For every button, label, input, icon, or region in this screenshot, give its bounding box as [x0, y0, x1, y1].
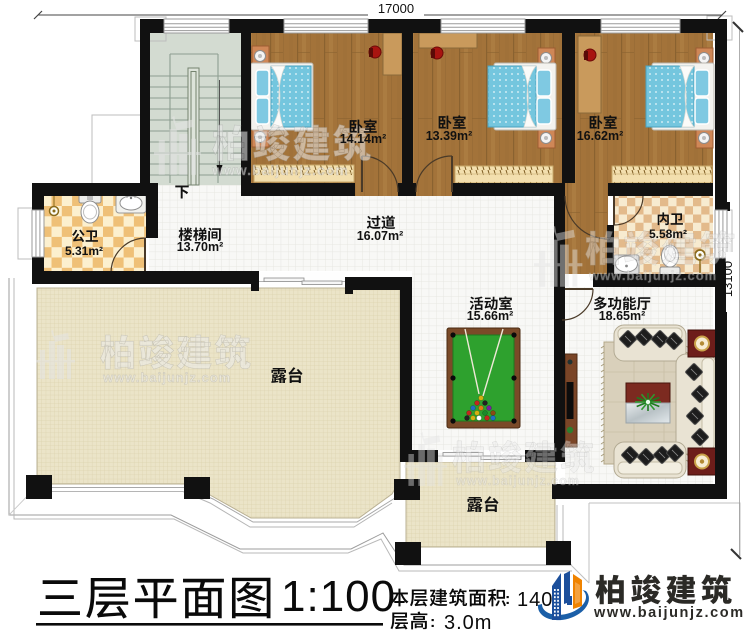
- svg-text:15.66m²: 15.66m²: [467, 309, 514, 323]
- svg-text:www.baijunjz.com: www.baijunjz.com: [593, 605, 745, 621]
- svg-text:www.baijunjz.com: www.baijunjz.com: [211, 162, 349, 178]
- svg-text:3.0m: 3.0m: [444, 612, 492, 634]
- svg-text:140: 140: [517, 589, 553, 611]
- svg-text:www.baijunjz.com: www.baijunjz.com: [102, 370, 231, 385]
- svg-text:5.31m²: 5.31m²: [65, 244, 103, 258]
- svg-text:www.baijunjz.com: www.baijunjz.com: [455, 474, 580, 488]
- svg-text:5.58m²: 5.58m²: [649, 227, 687, 241]
- svg-text::: :: [505, 591, 510, 608]
- svg-text:18.65m²: 18.65m²: [599, 309, 646, 323]
- svg-text:13100: 13100: [720, 261, 735, 297]
- svg-text:14.14m²: 14.14m²: [340, 132, 387, 146]
- svg-text:16.62m²: 16.62m²: [577, 129, 624, 143]
- svg-text:www.baijunjz.com: www.baijunjz.com: [588, 268, 717, 283]
- svg-text:13.39m²: 13.39m²: [426, 129, 473, 143]
- svg-text::: :: [430, 614, 435, 631]
- svg-text:1:100: 1:100: [281, 572, 396, 621]
- svg-text:13.70m²: 13.70m²: [177, 240, 224, 254]
- svg-text:16.07m²: 16.07m²: [357, 229, 404, 243]
- svg-text:17000: 17000: [378, 1, 414, 16]
